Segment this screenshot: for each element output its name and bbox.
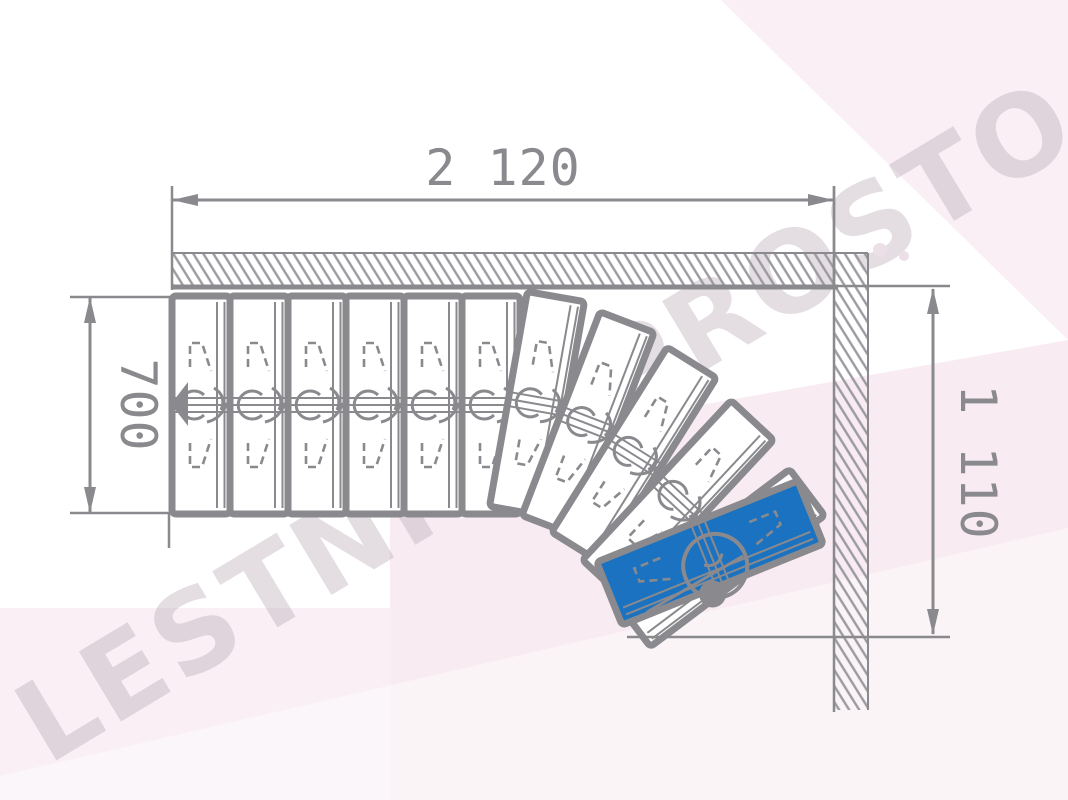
dimension-label-top: 2 120 [425,139,581,197]
stair-plan-drawing: 2 120 700 1 110 [0,0,1068,800]
tread-5 [404,296,462,514]
arrowhead-right [808,194,834,206]
arrowhead-left [172,194,198,206]
tread-2 [230,296,288,514]
top-wall-hatch [172,253,868,286]
dimension-label-left: 700 [109,358,167,451]
right-wall-hatch [834,286,868,710]
arrowhead-up [84,297,96,323]
watermark-dot [873,243,887,257]
arrowhead-up [927,288,939,314]
tread-4 [346,296,404,514]
staircase-plan-canvas: LESTNICY-PROSTO.RU [0,0,1068,800]
arrowhead-down [927,609,939,635]
tread-3 [288,296,346,514]
dimension-label-right: 1 110 [949,384,1007,540]
dimension-left: 700 [70,297,172,548]
arrowhead-down [84,487,96,513]
staircase [171,292,830,647]
watermark-dot [899,251,909,261]
